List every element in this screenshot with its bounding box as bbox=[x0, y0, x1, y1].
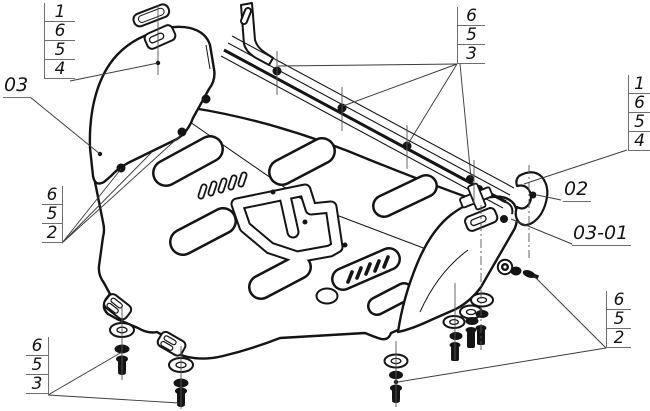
callout-item: 5 bbox=[629, 113, 650, 132]
nut-kit bbox=[498, 260, 540, 281]
part-label-02: 02 bbox=[563, 178, 591, 202]
callout-top-left: 1 6 5 4 bbox=[44, 3, 75, 79]
callout-top-right: 6 5 3 bbox=[457, 7, 485, 64]
callout-item: 1 bbox=[629, 75, 650, 94]
callout-item: 6 bbox=[26, 337, 48, 356]
assembly-drawing bbox=[0, 0, 650, 411]
callout-item: 3 bbox=[26, 375, 48, 394]
callout-item: 1 bbox=[45, 3, 75, 22]
callout-item: 3 bbox=[458, 45, 485, 64]
callout-item: 6 bbox=[607, 291, 631, 310]
callout-item: 2 bbox=[607, 329, 631, 348]
callout-item: 6 bbox=[629, 94, 650, 113]
callout-right: 1 6 5 4 bbox=[628, 75, 650, 151]
top-bar-part bbox=[132, 3, 171, 28]
callout-item: 6 bbox=[42, 186, 62, 205]
part-label-03: 03 bbox=[3, 74, 31, 98]
callout-bottom-right: 6 5 2 bbox=[606, 291, 631, 348]
part-label-03-01: 03-01 bbox=[572, 222, 631, 246]
callout-bottom-left: 6 5 3 bbox=[26, 337, 49, 394]
callout-item: 5 bbox=[42, 205, 62, 224]
callout-item: 5 bbox=[45, 41, 75, 60]
callout-item: 5 bbox=[26, 356, 48, 375]
callout-item: 4 bbox=[629, 132, 650, 151]
callout-mid-left: 6 5 2 bbox=[42, 186, 63, 243]
technical-drawing-page: 1 6 5 4 6 5 3 1 6 5 4 6 5 2 6 5 3 6 5 2 … bbox=[0, 0, 650, 411]
hook-part bbox=[516, 172, 548, 225]
callout-item: 5 bbox=[607, 310, 631, 329]
callout-item: 6 bbox=[45, 22, 75, 41]
callout-item: 5 bbox=[458, 26, 485, 45]
callout-item: 2 bbox=[42, 224, 62, 243]
callout-item: 6 bbox=[458, 7, 485, 26]
callout-item: 4 bbox=[45, 60, 75, 79]
